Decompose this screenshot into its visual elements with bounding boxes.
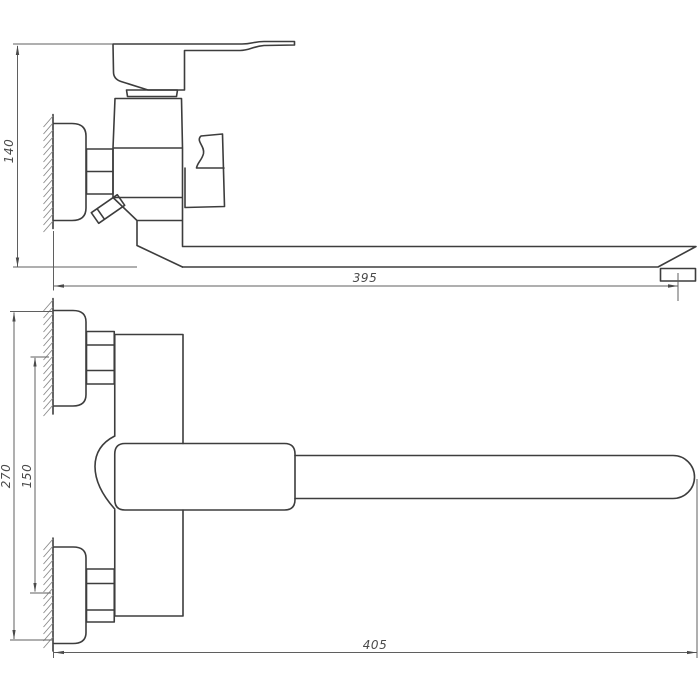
dimension-label-150: 150: [20, 464, 34, 488]
dimension-supply-spacing: 150: [20, 357, 51, 593]
extension-line: [54, 479, 698, 658]
arrow-left: [54, 284, 64, 287]
dimension-bottom-reach: 405: [54, 479, 698, 658]
dimension-label-270: 270: [0, 464, 13, 488]
technical-drawing-canvas: 140 395 270 150 405: [0, 0, 700, 700]
arrow-up: [33, 357, 36, 367]
shower-outlet: [185, 134, 225, 208]
front-view: [44, 299, 695, 652]
hub-ogee-curve: [95, 436, 115, 509]
faucet-body: [113, 99, 183, 268]
arrow-down: [16, 258, 19, 267]
lever-handle: [113, 42, 295, 91]
arrow-down: [12, 630, 15, 640]
dimension-top-reach: 395: [54, 231, 679, 301]
arrow-up: [12, 312, 15, 322]
escutcheon: [54, 124, 87, 221]
arrow-down: [33, 583, 36, 592]
spout-side: [183, 247, 697, 268]
connector-nut: [87, 149, 114, 194]
spout-hub: [115, 444, 295, 511]
cartridge-cap: [127, 90, 178, 97]
dimension-label-405: 405: [363, 638, 387, 652]
arrow-right: [668, 284, 678, 287]
extension-line: [13, 44, 137, 267]
arrow-left: [54, 651, 64, 654]
spout-front: [295, 456, 695, 499]
dimension-label-395: 395: [353, 271, 377, 285]
connector-nut-lower: [87, 569, 115, 622]
wall-hatch: [44, 116, 54, 232]
body-column-upper: [115, 335, 183, 444]
escutcheon-lower: [54, 547, 87, 644]
extension-line: [54, 231, 679, 301]
connector-nut-upper: [87, 332, 115, 385]
dimension-label-140: 140: [2, 139, 16, 163]
faucet-technical-drawing: 140 395 270 150 405: [0, 0, 700, 700]
body-column-lower: [115, 510, 183, 616]
arrow-up: [16, 45, 19, 55]
wall-hatch-upper: [44, 300, 54, 416]
dimension-top-height: 140: [2, 44, 137, 267]
diverter-knob: [91, 195, 124, 224]
arrow-right: [687, 651, 697, 654]
escutcheon-upper: [54, 311, 87, 407]
side-view: [44, 42, 697, 282]
